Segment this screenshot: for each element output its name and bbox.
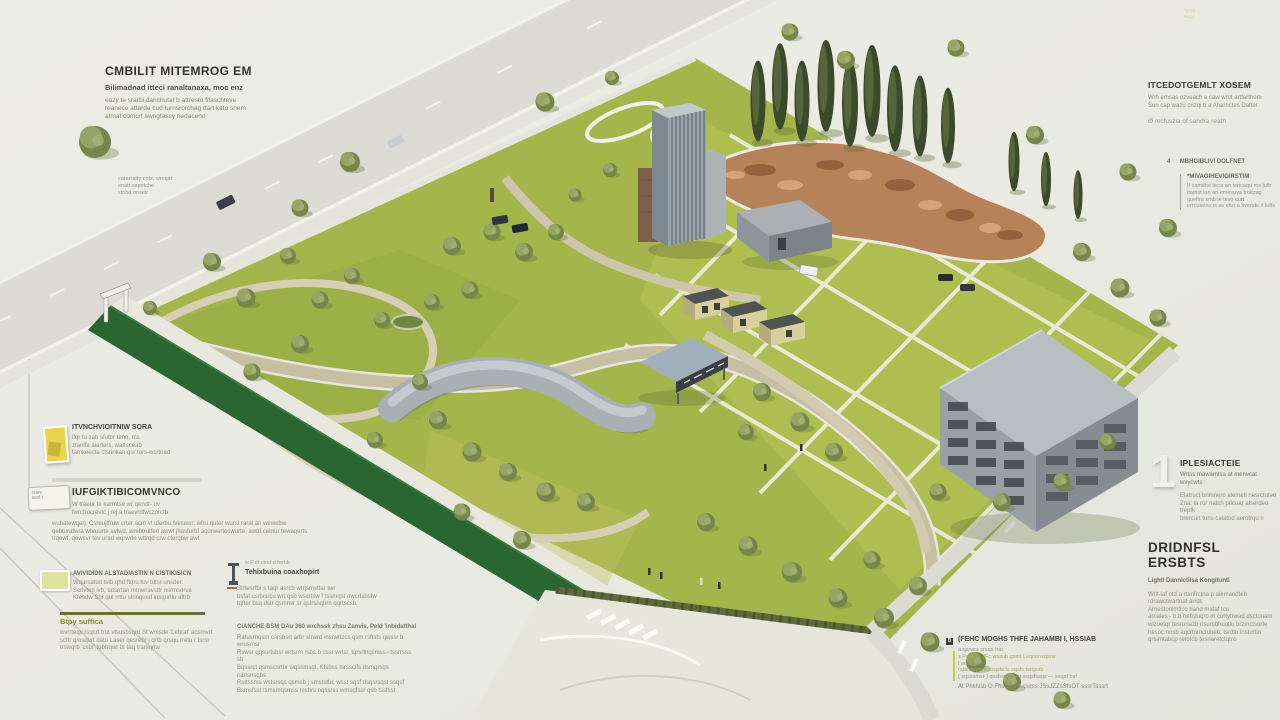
fountain-statue	[490, 188, 494, 202]
masterplan-infographic: CMBILIT MITEMROG EM Bilimadnad itteci ra…	[0, 0, 1280, 720]
annotation-heading: CiANCHE BSM DAu 360 wrchssk zhsu Zanvis,…	[237, 624, 417, 632]
annotation-heading: ITCEDOTGEMLT XOSEM	[1148, 80, 1276, 90]
annotation-bottom-right: (FEHC MOGHS THFE JAHAMBI I, HSSIAB a qsr…	[958, 636, 1183, 692]
annotation-top-left: CMBILIT MITEMROG EM Bilimadnad itteci ra…	[105, 64, 365, 121]
annotation-marker-4: 4 MBHGIBLIVI DOLFNET *MIVAGIHEVIGIRSTIM …	[1167, 150, 1277, 210]
list-icon: B	[946, 638, 953, 645]
annotation-left-mid-2: IUFGIKTIBICOMVNCO W traeur te earmtse wr…	[72, 487, 222, 517]
faded-highlight-bar	[52, 478, 202, 482]
yellow-swatch-icon	[43, 425, 70, 464]
stamp-badge-icon: crare tevd t	[27, 485, 70, 511]
marker-number-1: 1	[1150, 448, 1176, 494]
diameter-icon: Ø	[1148, 118, 1153, 125]
annotation-top-right: ITCEDOTGEMLT XOSEM Wrh emsas ozveach a c…	[1148, 80, 1276, 126]
pond	[392, 315, 424, 329]
annotation-left-mid-2-paragraph: wubatewqerj. Csreujtfruw crter acm vt uf…	[52, 521, 412, 544]
tree-caption: cararratty cotz, wrcqar enatt zapotche s…	[118, 176, 198, 196]
annotation-right-1: IPLESIACTEIE Wrtss mawamtsa at merwcat w…	[1180, 458, 1278, 524]
accent-bar	[953, 651, 955, 681]
annotation-center-low-1: w.P.dt ctrst d ferbb Tehixbuina coaxhopi…	[245, 560, 430, 576]
annotation-center-low-1-body: Strtesrfbr s taqr asrcb wrqsmsttar twr b…	[237, 586, 427, 609]
annotation-heading: CMBILIT MITEMROG EM	[105, 64, 365, 78]
olive-rule	[60, 612, 205, 615]
annotation-subheading: Bilimadnad itteci ranaltanaxa, moc enz	[105, 83, 365, 92]
annotation-right-2: DRIDNFSL ERSBTS Lightl Dannictilsa Kongi…	[1148, 540, 1278, 645]
green-swatch-icon	[40, 570, 70, 591]
annotation-heading: (FEHC MOGHS THFE JAHAMBI I, HSSIAB	[958, 636, 1183, 643]
annotation-heading: IPLESIACTEIE	[1180, 458, 1278, 468]
annotation-left-mid-1: ITVNCHVIOITNIW SORA ifqr tu zab sfutbr t…	[72, 424, 207, 458]
annotation-heading: Tehixbuina coaxhopirt	[245, 569, 430, 576]
annotation-heading: ITVNCHVIOITNIW SORA	[72, 424, 207, 431]
annotation-heading: IUFGIKTIBICOMVNCO	[72, 487, 222, 498]
annotation-center-low-2: CiANCHE BSM DAu 360 wrchssk zhsu Zanvis,…	[237, 624, 417, 695]
corner-badge: tqsrb wsqs	[1184, 8, 1196, 21]
marker-number: 4	[1167, 159, 1170, 165]
annotation-heading: DRIDNFSL ERSBTS	[1148, 540, 1278, 570]
